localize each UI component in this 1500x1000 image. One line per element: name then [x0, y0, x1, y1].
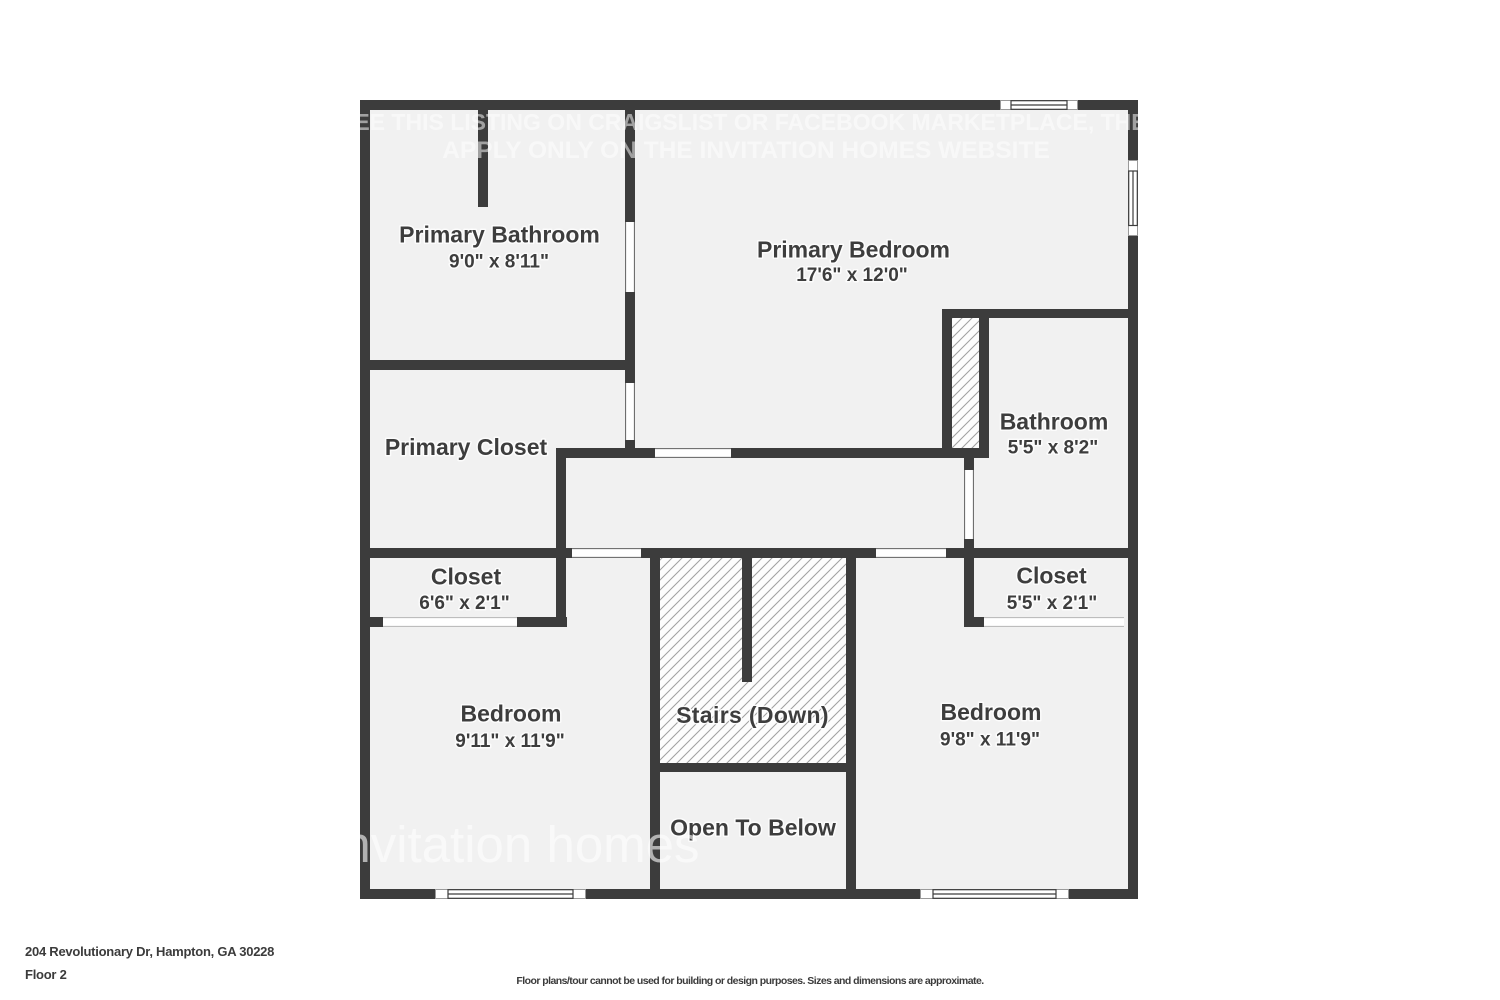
svg-text:Floor 2: Floor 2 [25, 967, 67, 982]
svg-text:Primary Bedroom: Primary Bedroom [757, 237, 950, 263]
svg-text:9'8" x 11'9": 9'8" x 11'9" [940, 730, 1040, 751]
svg-text:Stairs (Down): Stairs (Down) [676, 702, 829, 728]
svg-text:Closet: Closet [1016, 563, 1087, 589]
svg-text:204 Revolutionary Dr, Hampton,: 204 Revolutionary Dr, Hampton, GA 30228 [25, 944, 274, 959]
svg-text:5'5" x 2'1": 5'5" x 2'1" [1007, 593, 1097, 614]
svg-text:Primary Closet: Primary Closet [385, 434, 548, 460]
svg-text:9'11" x 11'9": 9'11" x 11'9" [455, 731, 564, 752]
svg-text:invitation homes: invitation homes [331, 816, 700, 873]
svg-text:Bedroom: Bedroom [941, 699, 1042, 725]
svg-text:SEE THIS LISTING ON CRAIGSLIST: SEE THIS LISTING ON CRAIGSLIST OR FACEBO… [339, 109, 1163, 135]
svg-text:Bathroom: Bathroom [1000, 409, 1109, 435]
svg-text:Closet: Closet [431, 564, 502, 590]
svg-text:6'6" x 2'1": 6'6" x 2'1" [419, 593, 509, 614]
svg-text:9'0" x 8'11": 9'0" x 8'11" [449, 252, 549, 273]
svg-text:Bedroom: Bedroom [461, 701, 562, 727]
svg-text:17'6" x 12'0": 17'6" x 12'0" [796, 265, 908, 286]
svg-text:5'5" x 8'2": 5'5" x 8'2" [1008, 438, 1098, 459]
svg-text:Primary Bathroom: Primary Bathroom [399, 222, 600, 248]
svg-text:APPLY ONLY ON THE INVITATION H: APPLY ONLY ON THE INVITATION HOMES WEBSI… [442, 137, 1050, 164]
svg-text:Floor plans/tour cannot be use: Floor plans/tour cannot be used for buil… [516, 975, 984, 987]
